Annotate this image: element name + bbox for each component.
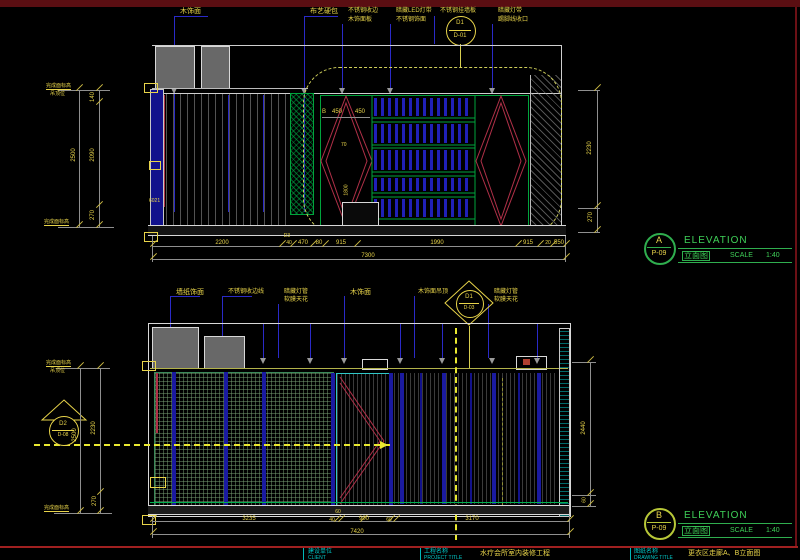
wall-tag: 6021: [149, 199, 160, 204]
red-trim-line: [164, 95, 165, 207]
level-label: 完成面标高: [44, 506, 69, 512]
dim-value: 60: [583, 497, 588, 503]
red-trim-line: [156, 373, 158, 433]
dim-line: [597, 90, 598, 232]
leader-line: [304, 16, 338, 17]
elevation-title-en: ELEVATION: [684, 511, 748, 521]
panel-seam: [537, 373, 541, 504]
drawing-label-en: DRAWING TITLE: [634, 556, 673, 560]
corner-tag: [149, 161, 161, 170]
centerline-vertical: [502, 378, 503, 515]
leader-line: [434, 16, 435, 44]
detail-bubble-divider: [449, 30, 471, 31]
dim-note: D3: [284, 234, 290, 239]
corner-tag: [150, 477, 166, 488]
scale-value: 1:40: [766, 527, 780, 534]
elevation-sheet: P-09: [652, 525, 667, 532]
callout-label: 暗藏灯带: [498, 8, 522, 14]
dim-value: 80: [316, 240, 323, 246]
dim-value: 140: [90, 92, 96, 102]
callout-label: 木饰面: [180, 8, 201, 15]
right-frame-line: [795, 7, 797, 546]
centerline-arrow-icon: [380, 441, 388, 449]
panel-seam: [262, 372, 266, 505]
dim-line: [152, 246, 565, 247]
dashed-cove-outline: [303, 67, 562, 235]
ceiling-step-line: [152, 88, 308, 89]
ceiling-bulkhead: [155, 46, 195, 89]
dim-value: 2500: [71, 148, 77, 161]
dim-value: 915: [523, 240, 533, 246]
elevation-letter: B: [656, 511, 662, 520]
dim-value: 550: [554, 240, 564, 246]
dim-value: 3235: [242, 516, 255, 522]
titlebar-separator: [303, 548, 304, 560]
ceiling-bulkhead: [152, 327, 199, 369]
client-label-en: CLIENT: [308, 556, 326, 560]
dim-line: [79, 90, 80, 227]
callout-label: 布艺硬包: [310, 8, 338, 15]
dim-value: 20: [545, 241, 551, 246]
dim-value: 2230: [587, 141, 593, 154]
corner-tag: [142, 361, 156, 371]
grid-screen-panel: [154, 372, 334, 507]
panel-seam: [228, 95, 229, 212]
dim-value: 2230: [91, 421, 97, 434]
level-label: 吊顶位: [50, 369, 65, 374]
level-label: 吊顶位: [50, 92, 65, 97]
detail-bubble-sheet: D-01: [453, 33, 466, 39]
corner-tag: [144, 83, 158, 93]
detail-bubble-sheet: D-03: [464, 306, 475, 311]
dim-ext-line: [58, 90, 110, 91]
curtain-panel: [394, 373, 558, 504]
dim-total: 7300: [361, 253, 374, 259]
level-label: 完成面标高: [44, 220, 69, 226]
dim-value: 40: [286, 241, 292, 246]
callout-label: 软膜天花: [494, 297, 518, 303]
floor-finish-line: [150, 502, 568, 503]
elevation-title-en: ELEVATION: [684, 236, 748, 246]
callout-label: 墙纸饰面: [176, 289, 204, 296]
callout-label: 软膜天花: [284, 297, 308, 303]
dim-value: 60: [386, 518, 392, 523]
elevation-letter: A: [656, 236, 662, 245]
callout-label: 踢脚线收口: [498, 17, 528, 23]
callout-label: 木饰面板: [348, 17, 372, 23]
dim-value: 2200: [215, 240, 228, 246]
dim-value: 2500: [72, 428, 78, 441]
dim-value: 40: [329, 518, 335, 523]
panel-seam: [492, 373, 496, 504]
detail-bubble-number: D1: [456, 20, 464, 26]
dim-value: 2440: [581, 421, 587, 434]
dim-value: 900: [359, 516, 369, 522]
dim-value: 3170: [465, 516, 478, 522]
end-wall-strip: [559, 328, 570, 517]
elevation-title-cn: 立面图: [682, 526, 710, 536]
callout-label: 不锈钢收边线: [228, 289, 264, 295]
dim-value: 270: [588, 212, 594, 222]
project-name: 水疗会所室内装修工程: [480, 550, 550, 557]
section-bubble-sheet: D-08: [58, 433, 69, 438]
project-label-en: PROJECT TITLE: [424, 556, 462, 560]
ceiling-bulkhead: [201, 46, 230, 89]
elevation-title-cn: 立面图: [682, 251, 710, 261]
baseboard: [148, 505, 569, 515]
panel-seam: [420, 373, 422, 504]
callout-label: 暗藏灯管: [284, 289, 308, 295]
titlebar-separator: [630, 548, 631, 560]
panel-seam: [263, 95, 264, 212]
dim-line: [99, 90, 100, 227]
dim-value: 2090: [90, 148, 96, 161]
baseboard: [148, 225, 566, 236]
cad-drawing-sheet: 木饰面 布艺硬包 不锈钢收边 木饰面板 暗藏LED灯带 不锈钢饰面 不锈钢挂墙板…: [0, 0, 800, 560]
callout-label: 不锈钢收边: [348, 8, 378, 14]
detail-bubble-number: D1: [465, 294, 473, 300]
dim-line: [152, 259, 565, 260]
panel-seam: [442, 373, 446, 504]
section-bubble-number: D2: [59, 421, 67, 427]
door-jamb: [389, 373, 393, 508]
bottom-frame-line: [0, 546, 798, 548]
titlebar-separator: [420, 548, 421, 560]
ceiling-bulkhead: [204, 336, 245, 369]
callout-label: 暗藏LED灯带: [396, 8, 432, 14]
dim-line: [80, 368, 81, 513]
scale-value: 1:40: [766, 252, 780, 259]
dim-value: 60: [335, 510, 341, 515]
panel-seam: [224, 372, 228, 505]
leader-line: [174, 16, 208, 17]
dim-value: 1990: [430, 240, 443, 246]
callout-label: 木饰面: [350, 289, 371, 296]
dim-line: [590, 362, 591, 506]
panel-seam: [400, 373, 404, 504]
panel-seam: [172, 372, 176, 505]
leader-line: [460, 44, 461, 68]
top-frame-band: [0, 0, 800, 7]
panel-seam: [518, 373, 520, 504]
dim-ext-line: [58, 227, 114, 228]
dim-value: 270: [90, 210, 96, 220]
dim-value: 470: [298, 240, 308, 246]
callout-label: 暗藏灯管: [494, 289, 518, 295]
centerline-horizontal: [34, 444, 390, 446]
level-label: 完成面标高: [46, 84, 71, 90]
dim-value: 915: [336, 240, 346, 246]
dim-total: 7420: [350, 529, 363, 535]
drawing-name: 更衣区走廊A、B立面图: [688, 550, 760, 557]
dim-value: 270: [92, 496, 98, 506]
scale-label: SCALE: [730, 252, 753, 259]
door-jamb: [331, 373, 335, 508]
level-label: 完成面标高: [46, 361, 71, 367]
callout-label: 不锈钢挂墙板: [440, 8, 476, 14]
panel-seam: [470, 373, 472, 504]
callout-label: 不锈钢饰面: [396, 17, 426, 23]
scale-label: SCALE: [730, 527, 753, 534]
elevation-sheet: P-09: [652, 250, 667, 257]
red-detail-mark: [523, 359, 530, 365]
ceiling-finish-line: [150, 368, 568, 369]
